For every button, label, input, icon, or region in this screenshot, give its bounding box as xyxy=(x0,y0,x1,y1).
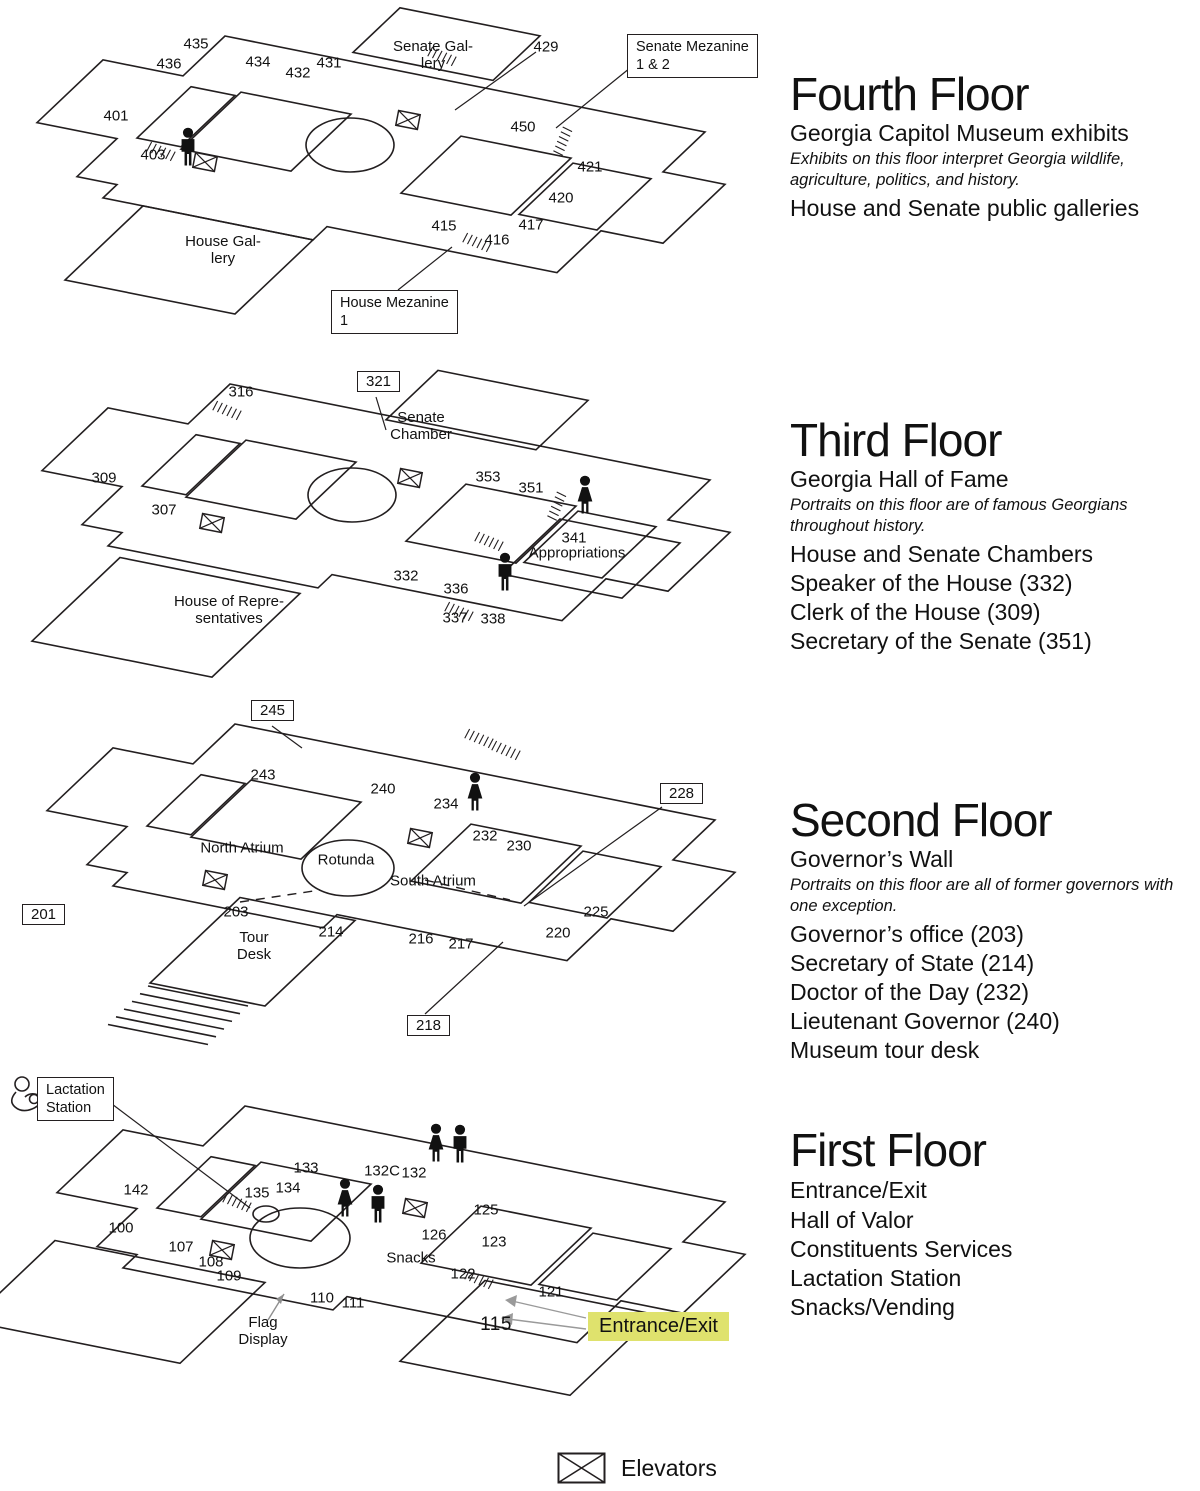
room-label: 416 xyxy=(484,232,509,249)
room-label: 142 xyxy=(123,1182,148,1199)
area-label: Appropriations xyxy=(529,544,626,561)
elevator-icon xyxy=(408,829,432,848)
entrance-exit-highlight: Entrance/Exit xyxy=(588,1312,729,1341)
callout-box: Lactation Station xyxy=(37,1077,114,1121)
room-label: 403 xyxy=(140,147,165,164)
room-label: 240 xyxy=(370,781,395,798)
boxed-room-label: 321 xyxy=(357,371,400,392)
area-label: North Atrium xyxy=(200,839,283,856)
elevators-legend: Elevators xyxy=(557,1452,717,1484)
callout-box: House Mezanine 1 xyxy=(331,290,458,334)
floor-feature-item: Governor’s office (203) xyxy=(790,920,1198,949)
elevator-icon xyxy=(193,153,217,172)
floor-feature-item: Hall of Valor xyxy=(790,1206,1198,1235)
stairs-icon xyxy=(212,400,242,420)
room-label: 431 xyxy=(316,55,341,72)
room-label: 232 xyxy=(472,828,497,845)
room-label: 316 xyxy=(228,384,253,401)
area-label: Rotunda xyxy=(318,851,375,868)
elevator-icon xyxy=(200,514,224,533)
room-label: 415 xyxy=(431,218,456,235)
boxed-room-label: 201 xyxy=(22,904,65,925)
male-restroom-icon xyxy=(182,128,195,166)
room-label: 220 xyxy=(545,925,570,942)
room-label: 111 xyxy=(342,1295,365,1312)
elevator-icon xyxy=(557,1452,606,1484)
floor-feature-item: Lactation Station xyxy=(790,1264,1198,1293)
room-label: 353 xyxy=(475,469,500,486)
floor-features: Entrance/ExitHall of ValorConstituents S… xyxy=(790,1176,1198,1322)
room-label: 110 xyxy=(310,1290,334,1307)
room-label: 417 xyxy=(518,217,543,234)
area-label: Flag Display xyxy=(238,1314,287,1349)
room-label: 122 xyxy=(450,1266,475,1283)
area-label: Snacks xyxy=(386,1249,435,1266)
room-label: 134 xyxy=(275,1180,300,1197)
floor-note: Portraits on this floor are all of forme… xyxy=(790,875,1198,918)
male-restroom-icon xyxy=(454,1125,467,1163)
room-label: 132 xyxy=(401,1165,426,1182)
room-label: 115 xyxy=(480,1314,512,1336)
elevator-icon xyxy=(396,111,420,130)
room-label: 234 xyxy=(433,796,458,813)
floor-subtitle: Georgia Capitol Museum exhibits xyxy=(790,120,1198,146)
room-label: 230 xyxy=(506,838,531,855)
room-label: 109 xyxy=(216,1268,241,1285)
room-label: 332 xyxy=(393,568,418,585)
callout-box: Senate Mezanine 1 & 2 xyxy=(627,34,758,78)
room-label: 435 xyxy=(183,36,208,53)
room-label: 225 xyxy=(583,904,608,921)
female-restroom-icon xyxy=(468,773,483,811)
floor-subtitle: Georgia Hall of Fame xyxy=(790,466,1198,492)
floor-note: Exhibits on this floor interpret Georgia… xyxy=(790,149,1198,192)
area-label: South Atrium xyxy=(390,872,476,889)
floor-feature-item: Speaker of the House (332) xyxy=(790,569,1198,598)
floor-features: Governor’s office (203)Secretary of Stat… xyxy=(790,920,1198,1066)
female-restroom-icon xyxy=(578,476,593,514)
floor-feature-item: House and Senate Chambers xyxy=(790,540,1198,569)
room-label: 135 xyxy=(244,1185,269,1202)
elevator-icon xyxy=(398,469,422,488)
stairs-icon xyxy=(491,740,521,760)
floor-feature-item: Entrance/Exit xyxy=(790,1176,1198,1205)
room-label: 336 xyxy=(443,581,468,598)
boxed-room-label: 245 xyxy=(251,700,294,721)
floor-features: House and Senate public galleries xyxy=(790,194,1198,223)
stairs-icon xyxy=(553,126,573,156)
floor-title: First Floor xyxy=(790,1126,1198,1174)
room-label: 243 xyxy=(250,767,275,784)
boxed-room-label: 228 xyxy=(660,783,703,804)
room-label: 216 xyxy=(408,931,433,948)
room-label: 432 xyxy=(285,65,310,82)
floor-feature-item: Museum tour desk xyxy=(790,1036,1198,1065)
lactation-icon xyxy=(12,1077,40,1111)
room-label: 107 xyxy=(168,1239,193,1256)
male-restroom-icon xyxy=(499,553,512,591)
stairs-icon xyxy=(474,531,504,551)
room-label: 401 xyxy=(103,108,128,125)
stairs-icon xyxy=(547,491,567,521)
legend-label: Elevators xyxy=(621,1455,717,1482)
floor-feature-item: Constituents Services xyxy=(790,1235,1198,1264)
room-label: 434 xyxy=(245,54,270,71)
female-restroom-icon xyxy=(338,1179,353,1217)
floor-feature-item: Clerk of the House (309) xyxy=(790,598,1198,627)
floor-title: Third Floor xyxy=(790,416,1198,464)
room-label: 421 xyxy=(577,159,602,176)
floor-info-first: First Floor Entrance/ExitHall of ValorCo… xyxy=(790,1126,1198,1322)
floor-features: House and Senate ChambersSpeaker of the … xyxy=(790,540,1198,657)
floor-subtitle: Governor’s Wall xyxy=(790,846,1198,872)
floor-info-second: Second Floor Governor’s Wall Portraits o… xyxy=(790,796,1198,1066)
floor-info-third: Third Floor Georgia Hall of Fame Portrai… xyxy=(790,416,1198,656)
floor-note: Portraits on this floor are of famous Ge… xyxy=(790,495,1198,538)
room-label: 132C xyxy=(364,1163,400,1180)
room-label: 309 xyxy=(91,470,116,487)
room-label: 429 xyxy=(533,39,558,56)
female-restroom-icon xyxy=(429,1124,444,1162)
room-label: 420 xyxy=(548,190,573,207)
area-label: Tour Desk xyxy=(237,929,271,964)
room-label: 217 xyxy=(448,936,473,953)
room-label: 338 xyxy=(480,611,505,628)
room-label: 337 xyxy=(442,610,467,627)
room-label: 351 xyxy=(518,480,543,497)
room-label: 203 xyxy=(223,904,248,921)
room-label: 126 xyxy=(421,1227,446,1244)
room-label: 307 xyxy=(151,502,176,519)
floor-feature-item: Doctor of the Day (232) xyxy=(790,978,1198,1007)
room-label: 100 xyxy=(108,1220,133,1237)
floor-feature-item: Snacks/Vending xyxy=(790,1293,1198,1322)
area-label: House Gal- lery xyxy=(185,233,261,268)
elevator-icon xyxy=(203,871,227,890)
floor-info-fourth: Fourth Floor Georgia Capitol Museum exhi… xyxy=(790,70,1198,223)
male-restroom-icon xyxy=(372,1185,385,1223)
floor-feature-item: Lieutenant Governor (240) xyxy=(790,1007,1198,1036)
boxed-room-label: 218 xyxy=(407,1015,450,1036)
floor-title: Fourth Floor xyxy=(790,70,1198,118)
area-label: Senate Gal- lery xyxy=(393,38,473,73)
elevator-icon xyxy=(403,1199,427,1218)
floor-feature-item: Secretary of State (214) xyxy=(790,949,1198,978)
capitol-floor-maps: 4354364344324314294014034504214204174154… xyxy=(0,0,1200,1491)
room-label: 121 xyxy=(538,1284,563,1301)
room-label: 214 xyxy=(318,924,343,941)
area-label: House of Repre- sentatives xyxy=(174,593,284,628)
room-label: 436 xyxy=(156,56,181,73)
room-label: 133 xyxy=(293,1160,318,1177)
room-label: 123 xyxy=(481,1234,506,1251)
floor-feature-item: Secretary of the Senate (351) xyxy=(790,627,1198,656)
stairs-icon xyxy=(464,728,494,748)
area-label: Senate Chamber xyxy=(390,409,452,444)
floor-title: Second Floor xyxy=(790,796,1198,844)
floor-feature-item: House and Senate public galleries xyxy=(790,194,1198,223)
room-label: 125 xyxy=(473,1202,498,1219)
room-label: 450 xyxy=(510,119,535,136)
